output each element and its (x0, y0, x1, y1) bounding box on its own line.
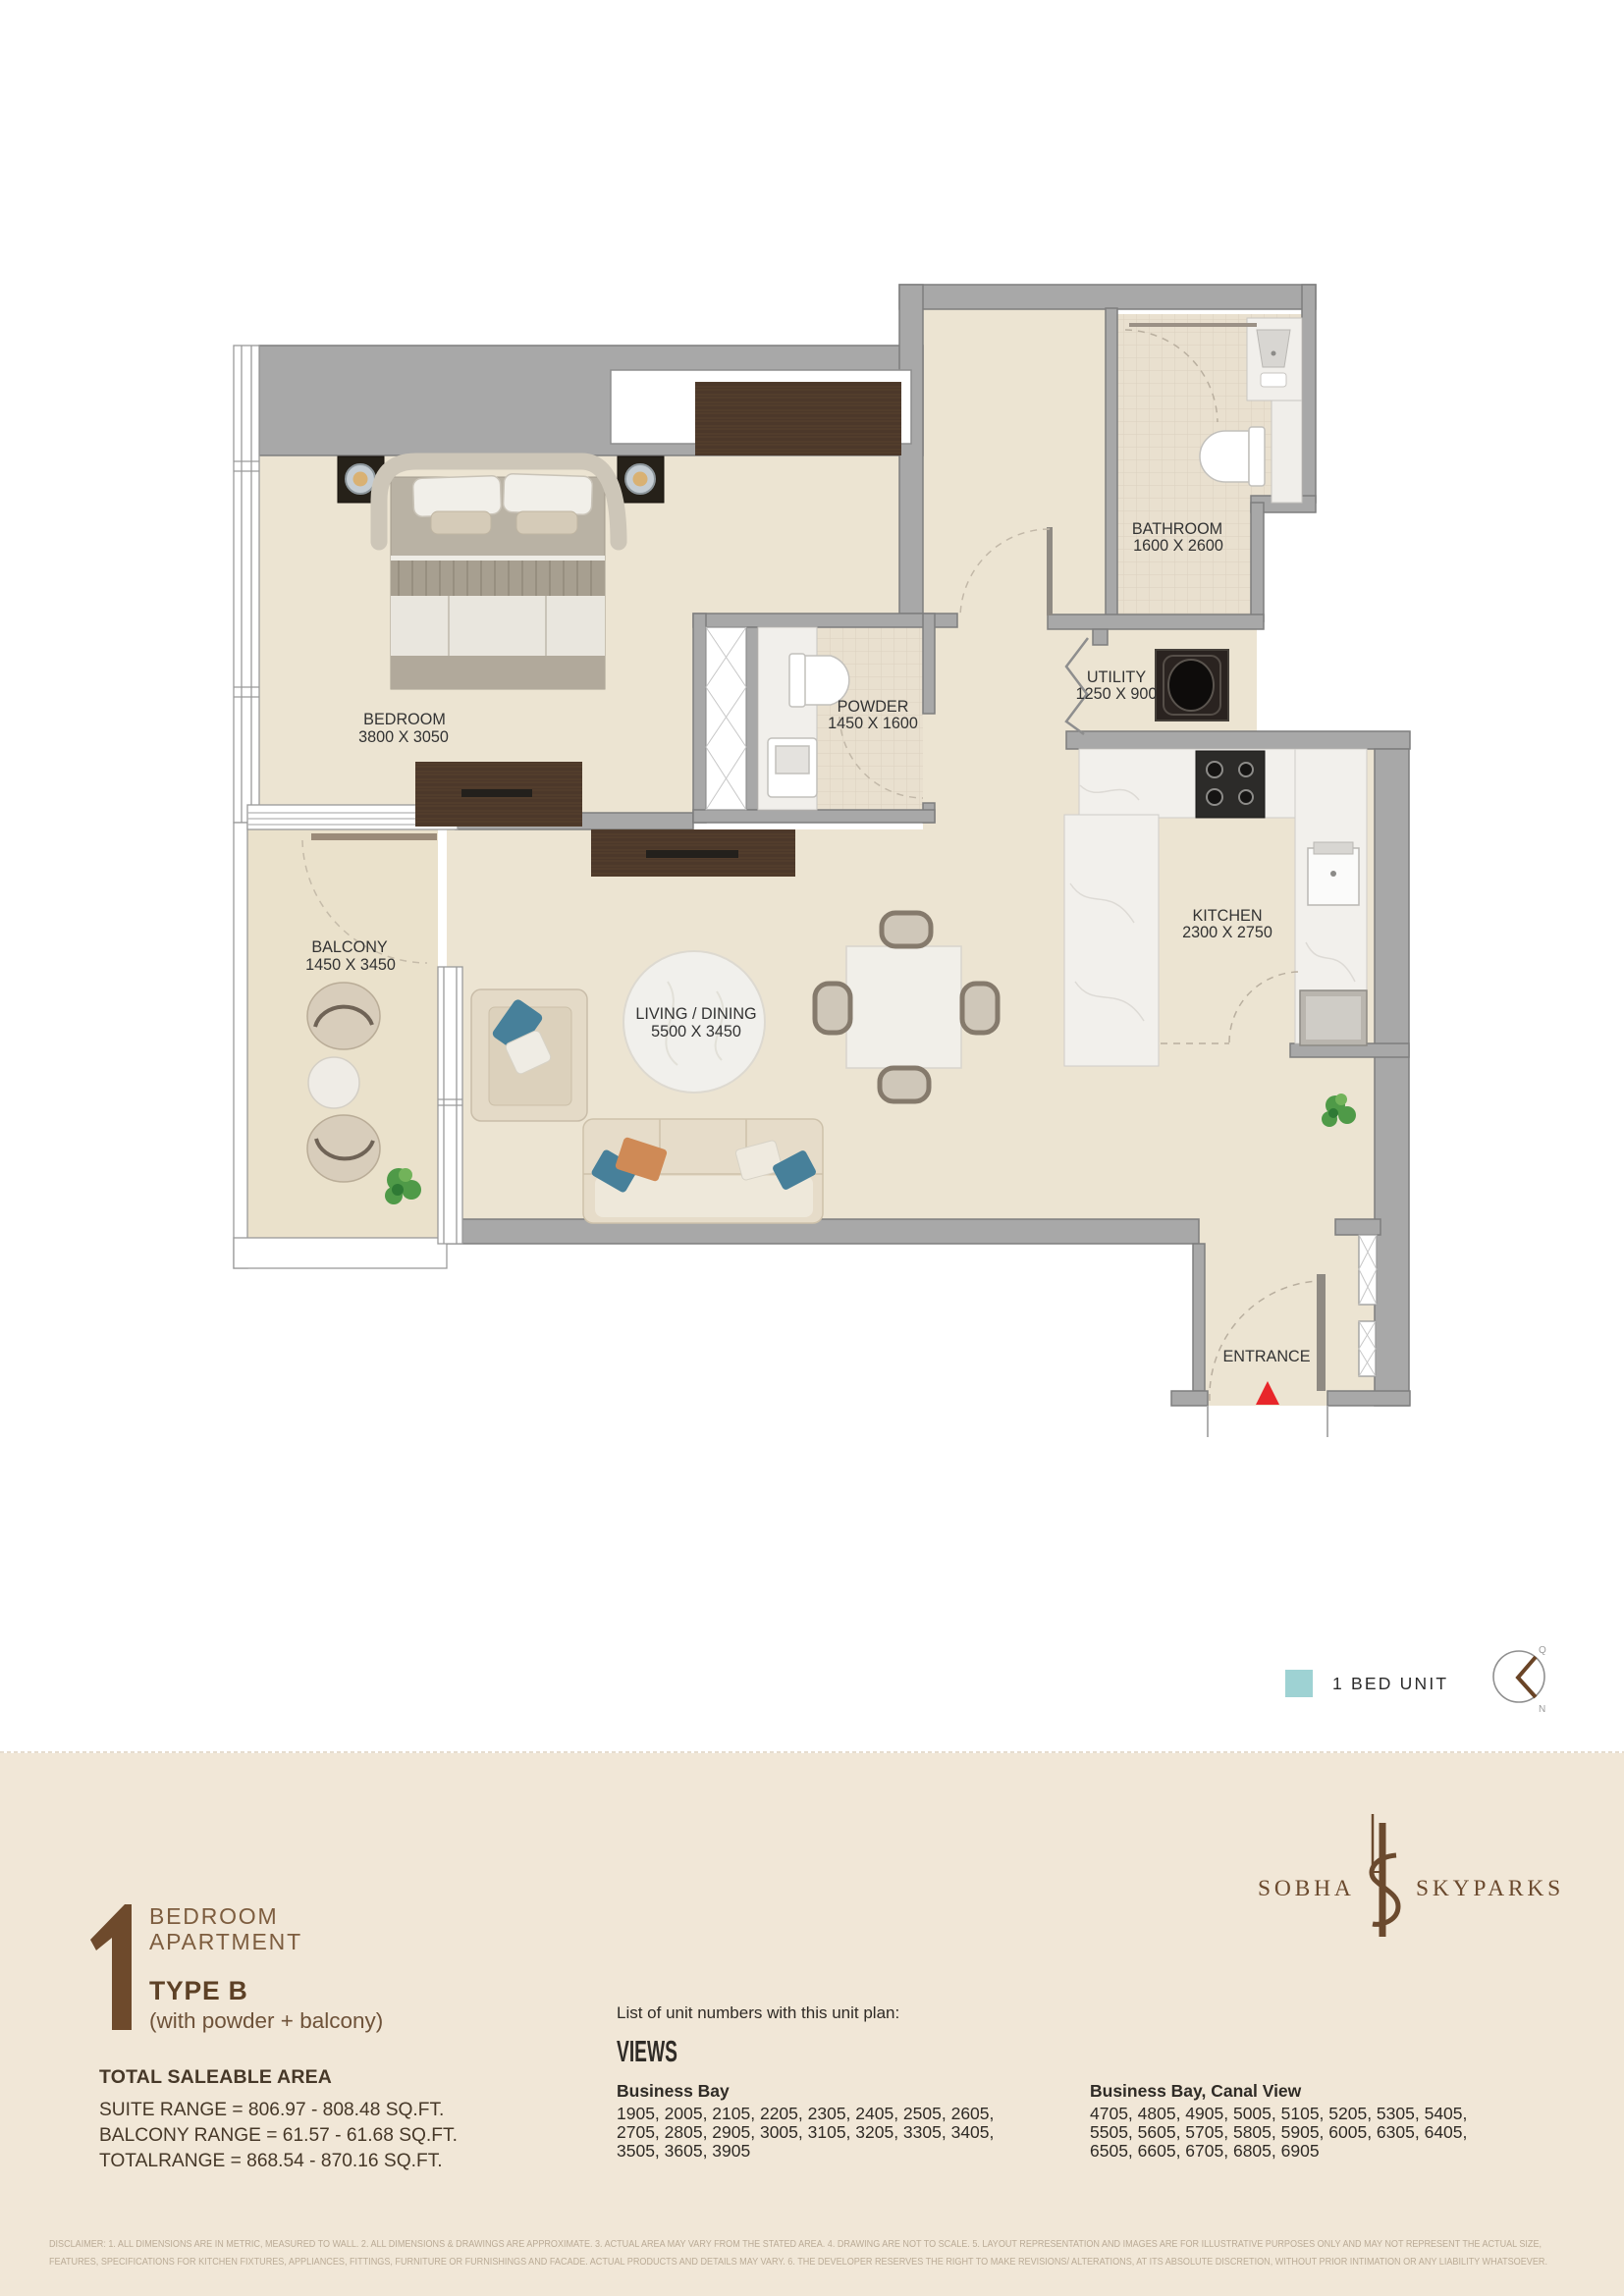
svg-text:1905, 2005, 2105, 2205, 2305,: 1905, 2005, 2105, 2205, 2305, 2405, 2505… (617, 2104, 994, 2123)
svg-text:3505, 3605, 3905: 3505, 3605, 3905 (617, 2141, 750, 2161)
svg-text:2705, 2805, 2905, 3005, 3105,: 2705, 2805, 2905, 3005, 3105, 3205, 3305… (617, 2122, 994, 2142)
svg-text:(with powder + balcony): (with powder + balcony) (149, 2008, 383, 2033)
svg-text:APARTMENT: APARTMENT (149, 1929, 302, 1954)
svg-text:DISCLAIMER: 1. ALL DIMENSIONS: DISCLAIMER: 1. ALL DIMENSIONS ARE IN MET… (49, 2239, 1542, 2250)
svg-text:Business Bay, Canal View: Business Bay, Canal View (1090, 2081, 1302, 2101)
svg-text:LIVING / DINING: LIVING / DINING (635, 1005, 756, 1023)
svg-text:List of unit numbers with this: List of unit numbers with this unit plan… (617, 2003, 899, 2022)
svg-text:KITCHEN: KITCHEN (1192, 907, 1262, 925)
svg-text:1 BED UNIT: 1 BED UNIT (1332, 1674, 1448, 1693)
svg-text:SKYPARKS: SKYPARKS (1416, 1876, 1564, 1901)
svg-text:FEATURES, SPECIFICATIONS FOR K: FEATURES, SPECIFICATIONS FOR KITCHEN FIX… (49, 2257, 1547, 2268)
svg-text:BALCONY RANGE = 61.57 - 61.68: BALCONY RANGE = 61.57 - 61.68 SQ.FT. (99, 2125, 458, 2146)
svg-text:TYPE B: TYPE B (149, 1976, 248, 2005)
svg-text:BEDROOM: BEDROOM (149, 1903, 278, 1929)
svg-text:POWDER: POWDER (838, 698, 909, 716)
svg-text:BALCONY: BALCONY (311, 938, 388, 956)
svg-text:6505, 6605, 6705, 6805, 6905: 6505, 6605, 6705, 6805, 6905 (1090, 2141, 1320, 2161)
svg-text:ENTRANCE: ENTRANCE (1222, 1348, 1310, 1365)
svg-text:TOTALRANGE = 868.54 - 870.16 S: TOTALRANGE = 868.54 - 870.16 SQ.FT. (99, 2151, 443, 2171)
svg-text:SUITE RANGE = 806.97 - 808.48: SUITE RANGE = 806.97 - 808.48 SQ.FT. (99, 2100, 444, 2120)
svg-text:2300 X 2750: 2300 X 2750 (1182, 924, 1272, 941)
svg-text:3800 X 3050: 3800 X 3050 (358, 728, 449, 746)
svg-text:1450 X 3450: 1450 X 3450 (305, 956, 396, 974)
svg-text:1450 X 1600: 1450 X 1600 (828, 715, 918, 732)
svg-text:4705, 4805, 4905, 5005, 5105,: 4705, 4805, 4905, 5005, 5105, 5205, 5305… (1090, 2104, 1467, 2123)
svg-text:5505, 5605, 5705, 5805, 5905,: 5505, 5605, 5705, 5805, 5905, 6005, 6305… (1090, 2122, 1467, 2142)
svg-text:TOTAL SALEABLE AREA: TOTAL SALEABLE AREA (99, 2066, 332, 2088)
svg-text:BATHROOM: BATHROOM (1132, 520, 1222, 538)
svg-text:SOBHA: SOBHA (1258, 1876, 1355, 1901)
svg-text:N: N (1539, 1704, 1545, 1715)
svg-text:BEDROOM: BEDROOM (363, 711, 446, 728)
svg-text:VIEWS: VIEWS (617, 2036, 677, 2069)
svg-text:1600 X 2600: 1600 X 2600 (1133, 537, 1223, 555)
svg-text:Business Bay: Business Bay (617, 2081, 730, 2101)
svg-text:UTILITY: UTILITY (1087, 668, 1146, 686)
svg-text:1250 X 900: 1250 X 900 (1076, 685, 1158, 703)
svg-text:5500 X 3450: 5500 X 3450 (651, 1023, 741, 1041)
svg-text:Q: Q (1539, 1645, 1546, 1656)
